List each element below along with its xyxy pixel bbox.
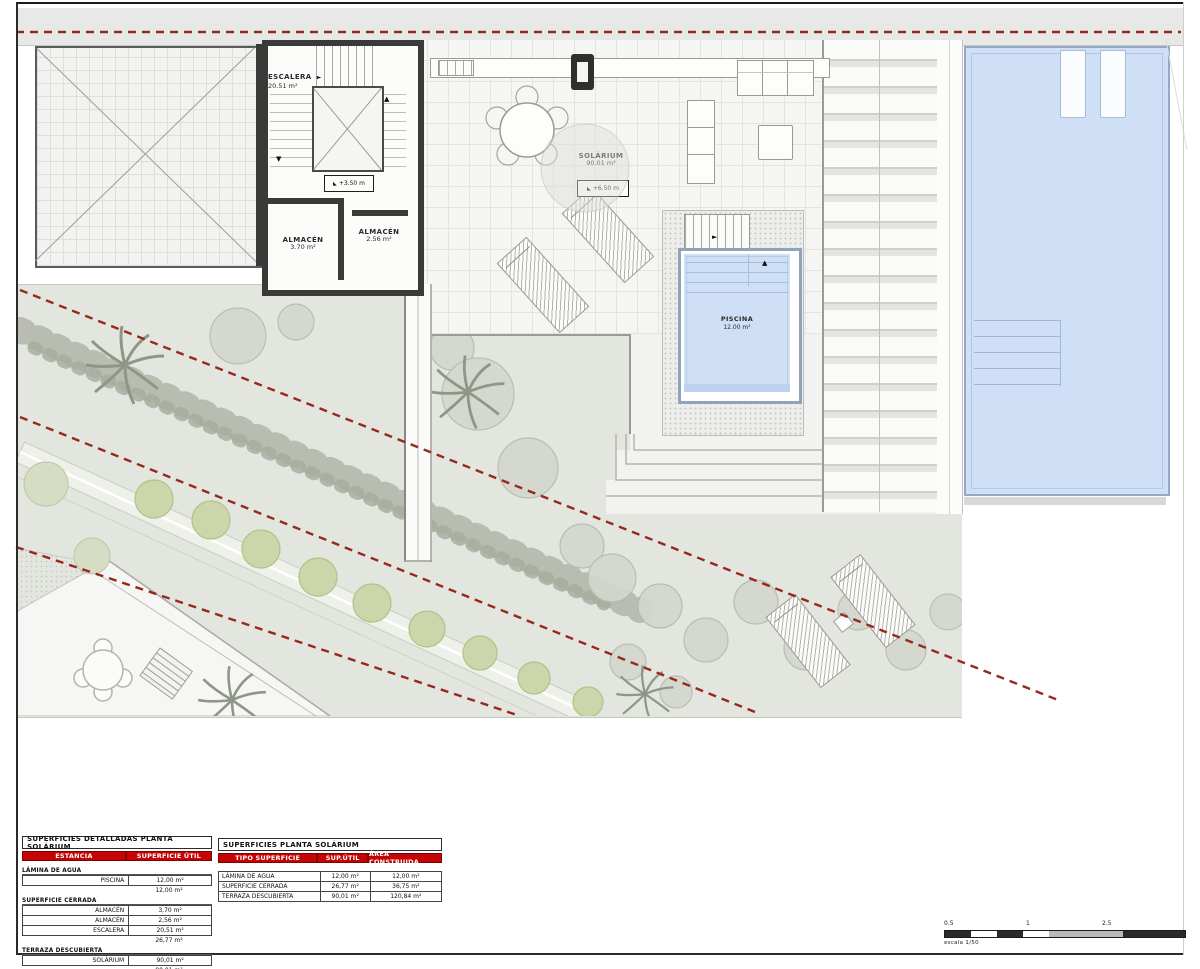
column-header: ESTANCIA: [22, 851, 126, 861]
level-icon: ◣: [333, 181, 337, 187]
room-label-almacen-b: ALMACÉN 2.56 m²: [349, 228, 409, 244]
right-arrow-icon: ►: [712, 234, 717, 241]
scale-tick-label: 1: [1026, 920, 1030, 927]
frame-right: [1183, 2, 1184, 955]
table-row: PISCINA 12,00 m²: [22, 875, 212, 886]
room-label-piscina: PISCINA 12.00 m²: [707, 316, 767, 331]
piscina-steps: [686, 262, 788, 296]
table-title: SUPERFICIES DETALLADAS PLANTA SOLÁRIUM: [22, 836, 212, 849]
column-header: TIPO SUPERFICIE: [218, 853, 317, 863]
table-row: SUPERFICIE CERRADA 26,77 m² 36,75 m²: [218, 882, 442, 892]
section-label: TERRAZA DESCUBIERTA: [22, 947, 212, 955]
terrace-sofa: [737, 60, 814, 96]
floor-plan-sheet: ▲ ► ▲ ▼ ESCALERA ► 20.51 m² ALMACÉN 3.70…: [0, 0, 1200, 969]
column-header: SUPERFICIE ÚTIL: [126, 851, 212, 861]
room-label-almacen-a: ALMACÉN 3.70 m²: [273, 236, 333, 252]
table-row: TERRAZA DESCUBIERTA 90,01 m² 120,84 m²: [218, 892, 442, 902]
table-row: SOLÁRIUM 90,01 m²: [22, 955, 212, 966]
right-arrow-icon: ►: [317, 74, 322, 81]
section-label: LÁMINA DE AGUA: [22, 867, 212, 875]
column-header: SUP.ÚTIL: [317, 853, 368, 863]
round-table-set: [0, 0, 1200, 969]
section-subtotal: 12,00 m²: [22, 886, 212, 894]
section-subtotal: 26,77 m²: [22, 936, 212, 944]
table-row: ESCALERA 20,51 m²: [22, 926, 212, 936]
table-row: ALMACÉN 3,70 m²: [22, 905, 212, 916]
up-arrow-icon: ▲: [384, 96, 389, 103]
scale-tick-label: 0.5: [944, 920, 954, 927]
room-label-escalera: ESCALERA ► 20.51 m²: [268, 64, 340, 91]
table-row: LÁMINA DE AGUA 12,00 m² 12,00 m²: [218, 871, 442, 882]
down-arrow-icon: ▼: [276, 156, 281, 163]
scale-tick-label: 2.5: [1102, 920, 1112, 927]
level-marker-solarium: ◣ +6.50 m: [577, 180, 629, 197]
level-icon: ◣: [587, 186, 591, 192]
up-arrow-icon: ▲: [762, 260, 767, 267]
level-marker-stair: ◣ +3.50 m: [324, 175, 374, 192]
room-label-solarium: SOLÁRIUM 90.01 m²: [561, 152, 641, 168]
shelf-unit: [687, 127, 715, 156]
scale-caption: escala 1/50: [944, 940, 979, 946]
graphic-scale: 0.5 1 2.5 escala 1/50: [944, 920, 1189, 950]
shelf-unit: [687, 154, 715, 184]
section-label: SUPERFICIE CERRADA: [22, 897, 212, 905]
scale-bar: [944, 930, 1186, 938]
shelf-unit: [687, 100, 715, 129]
frame-top: [16, 2, 1183, 4]
detailed-surfaces-table: SUPERFICIES DETALLADAS PLANTA SOLÁRIUM E…: [22, 836, 212, 969]
column-header: ÁREA CONSTRUIDA: [368, 853, 442, 863]
summary-surfaces-table: SUPERFICIES PLANTA SOLÁRIUM TIPO SUPERFI…: [218, 838, 442, 902]
table-row: ALMACÉN 2,56 m²: [22, 916, 212, 926]
frame-left: [16, 2, 18, 955]
pouf: [758, 125, 793, 160]
